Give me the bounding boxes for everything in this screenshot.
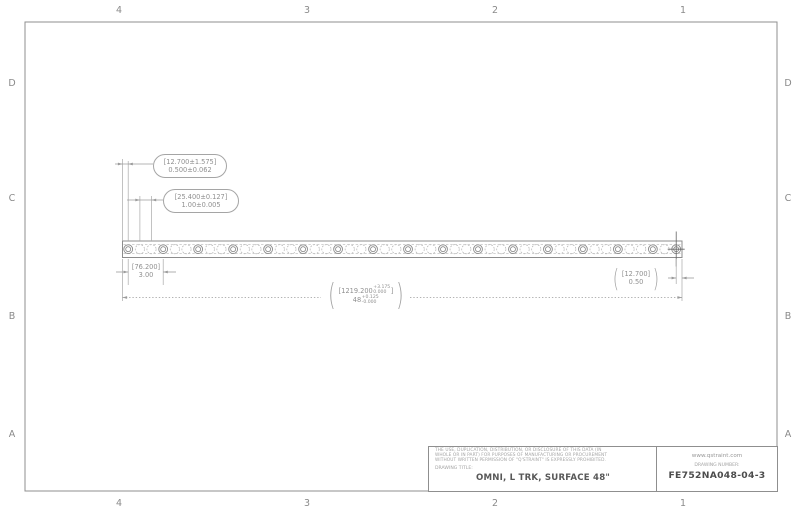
cad-drawing-canvas bbox=[0, 0, 800, 516]
callout-end-offset: [12.700±1.575] 0.500±0.062 bbox=[153, 154, 227, 178]
dim-end-offset-inch: 0.500±0.062 bbox=[168, 166, 211, 174]
zone-col-top-3: 3 bbox=[300, 4, 314, 17]
drawing-number-label: DRAWING NUMBER: bbox=[694, 463, 739, 468]
dim-end-offset-metric: [12.700±1.575] bbox=[164, 158, 217, 166]
paren-open-icon: ( bbox=[613, 266, 619, 291]
dim-bolt-spacing-metric: [76.200] bbox=[126, 263, 166, 271]
dim-pitch-metric: [25.400±0.127] bbox=[175, 193, 228, 201]
paren-close-icon: ) bbox=[397, 281, 404, 311]
drawing-title: OMNI, L TRK, SURFACE 48" bbox=[435, 473, 651, 483]
zone-col-top-2: 2 bbox=[488, 4, 502, 17]
zone-row-right-c: C bbox=[781, 192, 795, 205]
callout-hole-pitch: [25.400±0.127] 1.00±0.005 bbox=[163, 189, 239, 213]
proprietary-notice-line3: WITHOUT WRITTEN PERMISSION OF "Q'STRAINT… bbox=[435, 459, 651, 464]
zone-col-bottom-3: 3 bbox=[300, 497, 314, 510]
paren-close-icon: ) bbox=[653, 266, 659, 291]
zone-row-right-b: B bbox=[781, 310, 795, 323]
dim-bolt-spacing-inch: 3.00 bbox=[126, 271, 166, 279]
title-block: THE USE, DUPLICATION, DISTRIBUTION, OR D… bbox=[428, 446, 778, 492]
zone-row-right-a: A bbox=[781, 428, 795, 441]
dim-overall-metric-bracket: ] bbox=[391, 287, 394, 296]
dim-pitch-inch: 1.00±0.005 bbox=[181, 201, 220, 209]
dim-overall-inch-value: 48 bbox=[353, 296, 361, 305]
zone-row-left-b: B bbox=[5, 310, 19, 323]
zone-row-left-c: C bbox=[5, 192, 19, 205]
zone-col-top-1: 1 bbox=[676, 4, 690, 17]
zone-row-right-d: D bbox=[781, 77, 795, 90]
dim-right-end-inch: 0.50 bbox=[629, 278, 644, 286]
zone-col-bottom-4: 4 bbox=[112, 497, 126, 510]
callout-right-end: ( [12.700] 0.50 ) bbox=[605, 263, 667, 293]
drawing-sheet: 4 3 2 1 4 3 2 1 D C B A D C B A [12.700±… bbox=[0, 0, 800, 516]
zone-col-bottom-2: 2 bbox=[488, 497, 502, 510]
callout-overall-length: ( [1219.200 +3.175 0.000 ] 48 +0.125 -0.… bbox=[323, 280, 409, 312]
proprietary-notice: THE USE, DUPLICATION, DISTRIBUTION, OR D… bbox=[435, 449, 651, 464]
website-text: www.qstraint.com bbox=[692, 453, 742, 459]
title-block-right-cell: www.qstraint.com DRAWING NUMBER: FE752NA… bbox=[656, 447, 777, 491]
drawing-title-label: DRAWING TITLE: bbox=[435, 466, 651, 471]
zone-row-left-d: D bbox=[5, 77, 19, 90]
drawing-number: FE752NA048-04-3 bbox=[668, 470, 765, 481]
zone-row-left-a: A bbox=[5, 428, 19, 441]
dim-overall-inch: 48 +0.125 -0.000 bbox=[353, 296, 379, 306]
title-block-left-cell: THE USE, DUPLICATION, DISTRIBUTION, OR D… bbox=[429, 447, 656, 491]
dim-right-end-metric: [12.700] bbox=[622, 270, 650, 278]
dim-bolt-spacing: [76.200] 3.00 bbox=[126, 263, 166, 280]
paren-open-icon: ( bbox=[328, 281, 335, 311]
dim-overall-inch-minus: -0.000 bbox=[362, 301, 379, 306]
zone-col-bottom-1: 1 bbox=[676, 497, 690, 510]
zone-col-top-4: 4 bbox=[112, 4, 126, 17]
